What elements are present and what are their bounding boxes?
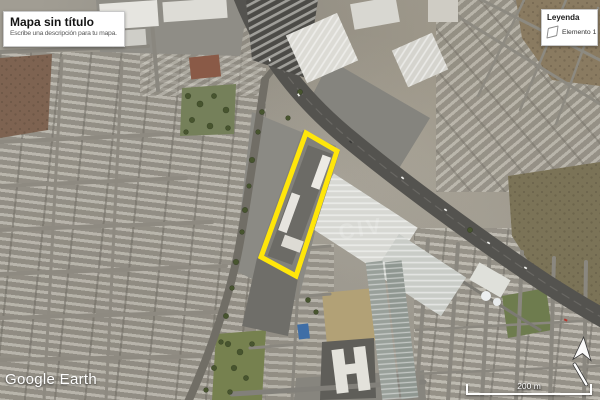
legend-item-label: Elemento 1 [562, 29, 596, 36]
satellite-imagery-layer: CIV [0, 0, 600, 400]
polygon-icon [546, 25, 558, 38]
map-subtitle: Escribe una descripción para tu mapa. [10, 30, 118, 37]
north-arrow-icon[interactable] [570, 334, 594, 386]
google-earth-window: CIV Mapa sin título Escribe una descripc… [0, 0, 600, 400]
google-earth-logo: Google Earth [5, 371, 97, 388]
map-title-card: Mapa sin título Escribe una descripción … [3, 11, 125, 47]
blue-roof-building [297, 323, 310, 339]
map-canvas[interactable]: CIV [0, 0, 600, 400]
legend-panel: Leyenda Elemento 1 [541, 9, 598, 46]
legend-item-elemento-1[interactable]: Elemento 1 [547, 27, 597, 37]
legend-title: Leyenda [547, 13, 597, 23]
map-title: Mapa sin título [10, 15, 118, 29]
